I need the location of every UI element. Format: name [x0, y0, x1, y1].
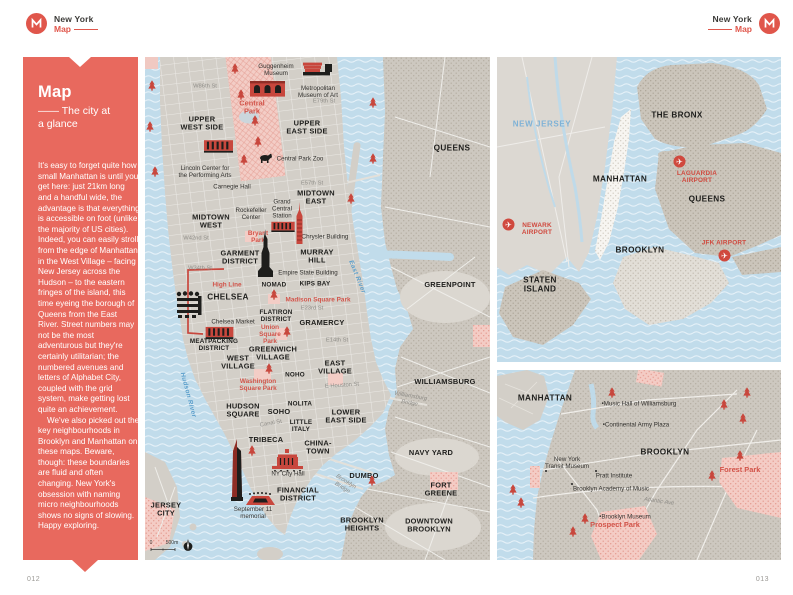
- panel-tail: [72, 560, 98, 572]
- panel-paragraph-1: It's easy to forget quite how small Manh…: [38, 161, 140, 415]
- panel-body: It's easy to forget quite how small Manh…: [38, 161, 140, 532]
- brand-rule: [74, 29, 98, 30]
- boroughs-overview-map: NEW JERSEYTHE BRONXMANHATTANLAGUARDIA AI…: [497, 57, 781, 362]
- header-left: New York Map: [26, 13, 98, 35]
- manhattan-map-art: [145, 57, 490, 560]
- panel-title: Map: [38, 83, 125, 102]
- panel-paragraph-2: We've also picked out the key neighbourh…: [38, 416, 140, 533]
- reservoir: [239, 111, 259, 124]
- intro-panel: Map —— The city at a glance It's easy to…: [23, 57, 138, 560]
- madison-square-park: [268, 294, 280, 304]
- poi-dot: [595, 470, 597, 472]
- brooklyn-map: MANHATTANBROOKLYN•Music Hall of Williams…: [497, 370, 781, 560]
- panel-subtitle: —— The city at a glance: [38, 105, 118, 131]
- brand-section: Map: [735, 25, 752, 35]
- header-right: New York Map: [708, 13, 780, 35]
- brand-section: Map: [54, 25, 71, 35]
- page-background: { "colors":{"accent_red":"#E0564B","side…: [0, 0, 793, 595]
- monocle-logo-icon: [759, 13, 780, 34]
- washington-square-park: [254, 369, 271, 380]
- manhattan-map: UPPER WEST SIDEUPPER EAST SIDEQUEENSMIDT…: [145, 57, 490, 560]
- brand-rule: [708, 29, 732, 30]
- monocle-logo-icon: [26, 13, 47, 34]
- page-number-right: 013: [756, 576, 769, 583]
- poi-dot: [571, 483, 573, 485]
- poi-dot: [545, 470, 547, 472]
- brooklyn-map-art: [497, 370, 781, 560]
- tompkins-square-park: [328, 373, 343, 385]
- fort-greene-park: [430, 472, 458, 490]
- newtown-creek: [373, 254, 450, 257]
- union-square-park: [276, 328, 287, 340]
- page-number-left: 012: [27, 576, 40, 583]
- panel-notch: [69, 57, 91, 67]
- bryant-park: [245, 231, 258, 242]
- overview-map-art: [497, 57, 781, 362]
